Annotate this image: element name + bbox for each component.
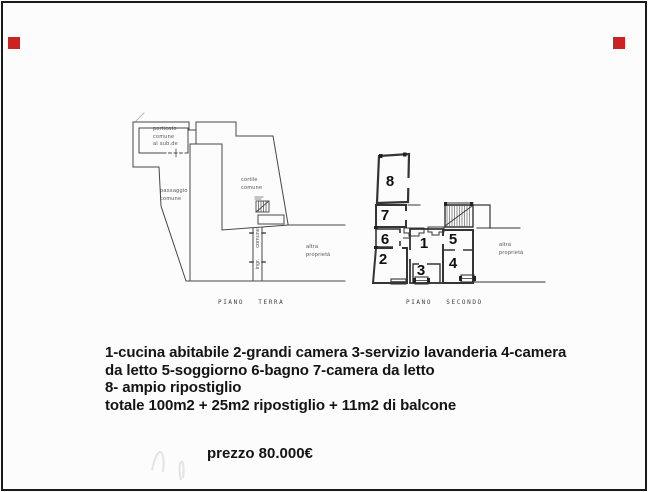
door-openings [393,178,463,267]
label-ingresso: ingr. [255,257,261,271]
room-legend-text: 1-cucina abitabile 2-grandi camera 3-ser… [105,344,580,414]
room-number-3: 3 [415,263,427,279]
room-number-6: 6 [379,232,391,248]
legend-line-1: 1-cucina abitabile 2-grandi camera 3-ser… [105,344,580,362]
label-passaggio-comune: passaggio comune [160,188,190,203]
label-comune-vertical: comune [255,225,261,251]
label-porticato: porticato comune al sub.de [153,126,189,149]
room-number-7: 7 [379,208,391,224]
legend-line-4: totale 100m2 + 25m2 ripostiglio + 11m2 d… [105,397,580,415]
room-number-5: 5 [447,232,459,248]
label-cortile-comune: cortile comune [241,177,275,192]
scan-smudge [152,452,184,480]
room-number-8: 8 [384,174,396,190]
label-altra-proprieta-terra: altra proprietà [306,244,342,259]
listing-scan-page: porticato comune al sub.de passaggio com… [0,0,648,492]
room-number-4: 4 [447,256,459,272]
caption-piano-terra: PIANO TERRA [218,299,284,306]
price-text: prezzo 80.000€ [207,445,313,462]
legend-line-3: 8- ampio ripostiglio [105,379,580,397]
room-number-1: 1 [418,236,430,252]
legend-line-2: da letto 5-soggiorno 6-bagno 7-camera da… [105,362,580,380]
label-altra-proprieta-secondo: altra proprietà [499,242,535,257]
room-number-2: 2 [377,252,389,268]
caption-piano-secondo: PIANO SECONDO [406,299,483,306]
piano-secondo-plan [373,154,545,284]
